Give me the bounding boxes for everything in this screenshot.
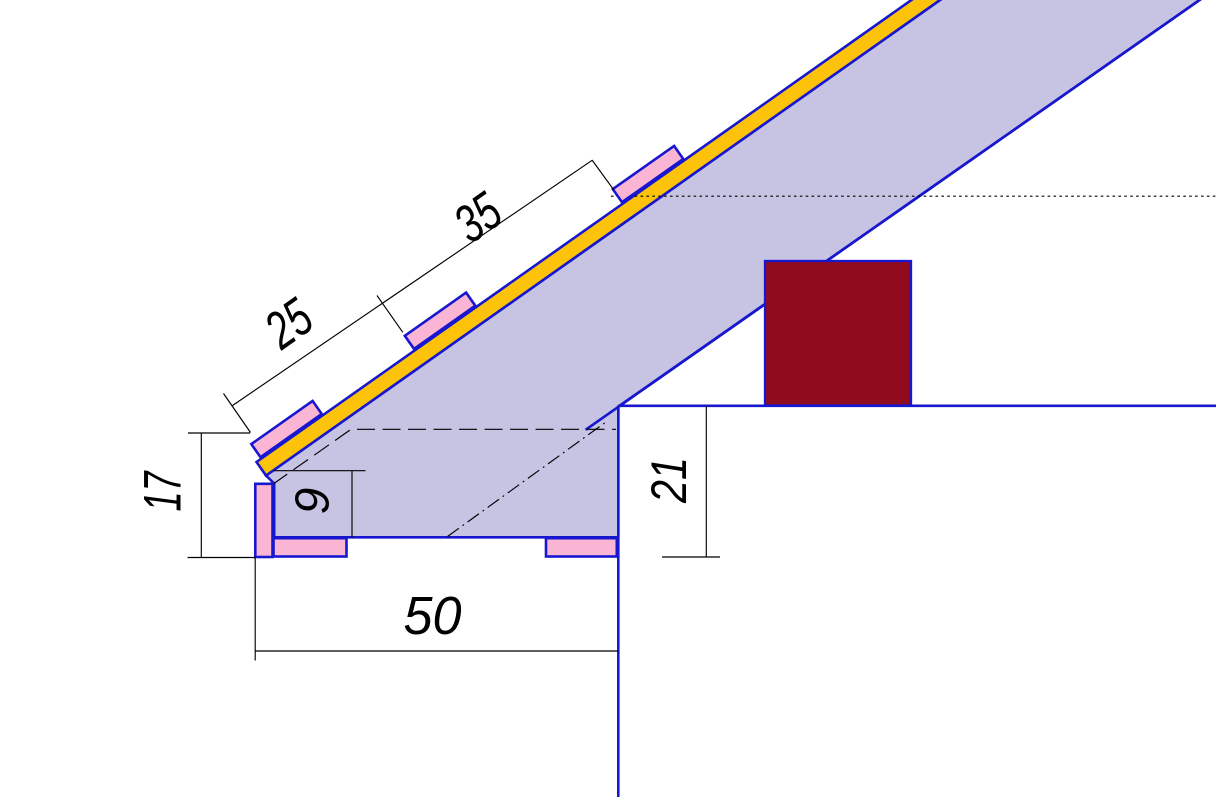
svg-text:9: 9 [287,488,340,515]
svg-text:17: 17 [134,470,193,512]
svg-text:21: 21 [641,457,697,504]
svg-text:50: 50 [404,586,462,646]
